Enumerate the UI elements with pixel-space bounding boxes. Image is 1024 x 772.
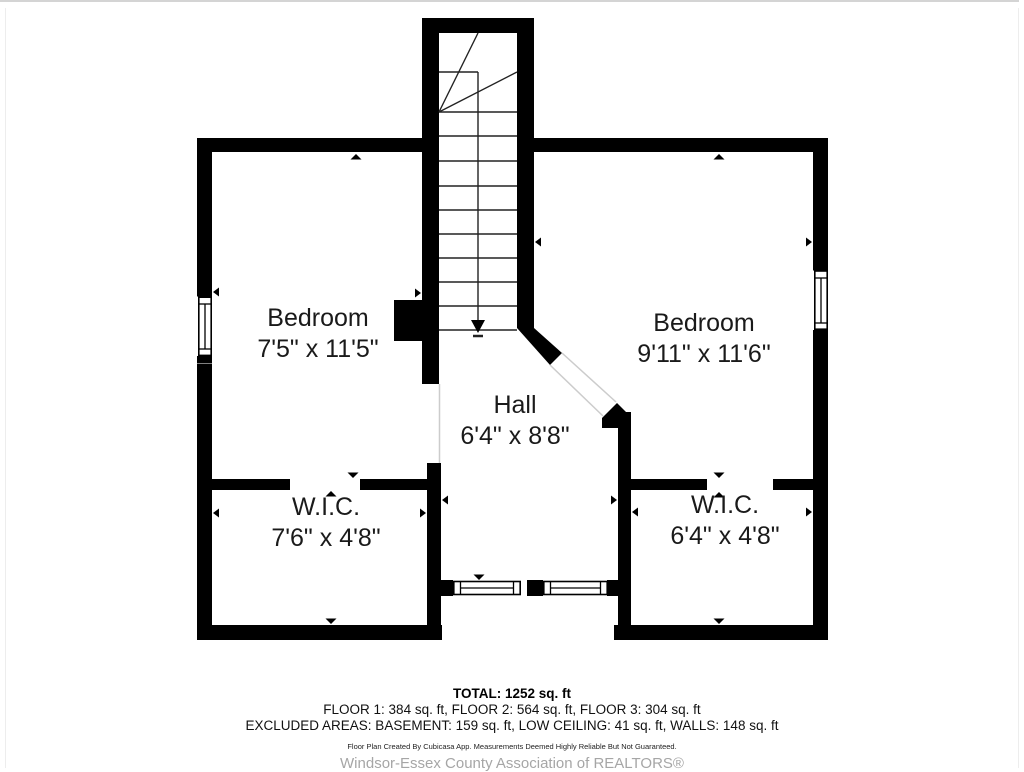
window-left-bedroom (197, 289, 212, 364)
hall-window-stub-left (441, 580, 453, 596)
floor-plan-drawing (0, 0, 1024, 768)
room-dimensions: 7'5" x 11'5" (257, 334, 378, 365)
top-wall-right-segment (534, 138, 828, 152)
arrow-left-icon (442, 496, 448, 505)
room-label-wic-left: W.I.C. 7'6" x 4'8" (271, 492, 380, 554)
right-wall-upper (813, 138, 828, 263)
room-dimensions: 6'4" x 4'8" (670, 521, 779, 552)
wic-right-top-wall-right (773, 479, 828, 490)
left-wall-lower (197, 364, 212, 640)
hall-window-stub-right (607, 580, 618, 596)
hall-diagonal-wall (517, 328, 562, 365)
hall-diagonal-wall-stub (602, 403, 631, 428)
top-wall-left-segment (197, 138, 423, 152)
room-name: Bedroom (257, 303, 378, 334)
room-label-bedroom-left: Bedroom 7'5" x 11'5" (257, 303, 378, 365)
total-area-text: TOTAL: 1252 sq. ft (0, 686, 1024, 702)
area-summary: TOTAL: 1252 sq. ft FLOOR 1: 384 sq. ft, … (0, 686, 1024, 772)
bottom-wall-right (614, 625, 828, 640)
arrow-down-icon (714, 473, 725, 479)
window-right-bedroom (813, 263, 828, 338)
stair-left-wall (422, 18, 439, 384)
arrow-right-icon (420, 509, 426, 518)
hall-window-center-post (527, 580, 543, 596)
arrow-right-icon (611, 496, 617, 505)
arrow-right-icon (806, 238, 812, 247)
room-dimensions: 7'6" x 4'8" (271, 523, 380, 554)
disclaimer-text: Floor Plan Created By Cubicasa App. Meas… (0, 742, 1024, 751)
room-label-wic-right: W.I.C. 6'4" x 4'8" (670, 490, 779, 552)
arrow-left-icon (213, 288, 219, 297)
left-wall-upper (197, 138, 212, 289)
arrow-up-icon (714, 154, 725, 160)
arrow-down-icon (714, 619, 725, 625)
attribution-text: Windsor-Essex County Association of REAL… (0, 755, 1024, 772)
arrow-down-icon (474, 575, 485, 581)
wic-left-top-wall-left (197, 479, 290, 490)
bottom-wall-left (197, 625, 442, 640)
chimney-block (394, 300, 424, 341)
wic-left-top-wall-right (360, 479, 441, 490)
arrow-left-icon (535, 238, 541, 247)
staircase (439, 33, 517, 336)
stair-down-arrow-icon (471, 320, 485, 333)
room-name: W.I.C. (271, 492, 380, 523)
room-name: W.I.C. (670, 490, 779, 521)
arrow-up-icon (351, 154, 362, 160)
wic-right-left-wall (618, 412, 631, 625)
hall-windows (441, 580, 618, 596)
stair-right-wall (517, 18, 534, 328)
room-name: Bedroom (637, 308, 770, 339)
arrow-left-icon (213, 509, 219, 518)
dimension-arrows-hall (442, 496, 617, 581)
room-dimensions: 6'4" x 8'8" (460, 421, 569, 452)
room-label-hall: Hall 6'4" x 8'8" (460, 390, 569, 452)
exterior-walls (197, 138, 828, 640)
room-label-bedroom-right: Bedroom 9'11" x 11'6" (637, 308, 770, 370)
excluded-areas-text: EXCLUDED AREAS: BASEMENT: 159 sq. ft, LO… (0, 718, 1024, 734)
arrow-right-icon (806, 508, 812, 517)
arrow-down-icon (348, 473, 359, 479)
wic-right-top-wall-left (618, 479, 707, 490)
room-dimensions: 9'11" x 11'6" (637, 339, 770, 370)
arrow-left-icon (632, 508, 638, 517)
room-name: Hall (460, 390, 569, 421)
arrow-down-icon (326, 619, 337, 625)
bedroom-right-doorway-line-outer (562, 353, 616, 402)
floor-areas-text: FLOOR 1: 384 sq. ft, FLOOR 2: 564 sq. ft… (0, 702, 1024, 718)
arrow-right-icon (415, 289, 421, 298)
